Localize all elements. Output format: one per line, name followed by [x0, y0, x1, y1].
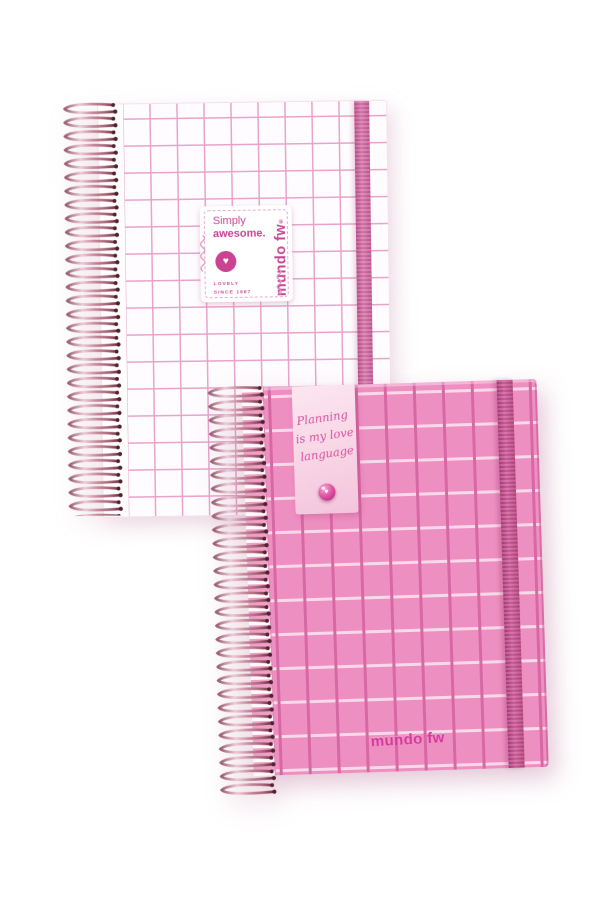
- pink-notebook-spine: [242, 387, 276, 775]
- label-title: Simply awesome.: [213, 214, 266, 241]
- tag-script-text: Planning is my love language: [290, 406, 360, 467]
- spiral-doodle-icon: [198, 234, 208, 274]
- white-notebook-spine: [98, 104, 129, 516]
- label-tagline-line2: SINCE 1987: [214, 288, 252, 294]
- heart-glyph: ♥: [223, 256, 229, 266]
- heart-button-icon: ♥: [318, 483, 336, 501]
- heart-glyph: ♥: [324, 489, 328, 496]
- pink-notebook-tag: Planning is my love language ♥: [292, 385, 359, 515]
- pink-notebook-cover: Planning is my love language ♥ mundo fw: [242, 379, 549, 776]
- heart-icon: ♥: [215, 251, 236, 272]
- spiral-doodle-icon: [274, 268, 283, 295]
- pink-notebook-elastic-band: [497, 380, 525, 768]
- pink-notebook: Planning is my love language ♥ mundo fw: [203, 373, 552, 803]
- label-tagline-line1: LOVELY: [214, 280, 239, 286]
- label-tagline: LOVELY SINCE 1987: [214, 279, 252, 296]
- product-photo: Simply awesome. ♥ LOVELY SINCE 1987 mund…: [0, 0, 600, 899]
- registered-mark: ®: [278, 216, 284, 223]
- label-title-line2: awesome.: [213, 228, 266, 242]
- brand-logo: mundo fw: [347, 728, 468, 752]
- white-notebook-label: Simply awesome. ♥ LOVELY SINCE 1987 mund…: [200, 205, 293, 302]
- label-title-line1: Simply: [213, 214, 266, 228]
